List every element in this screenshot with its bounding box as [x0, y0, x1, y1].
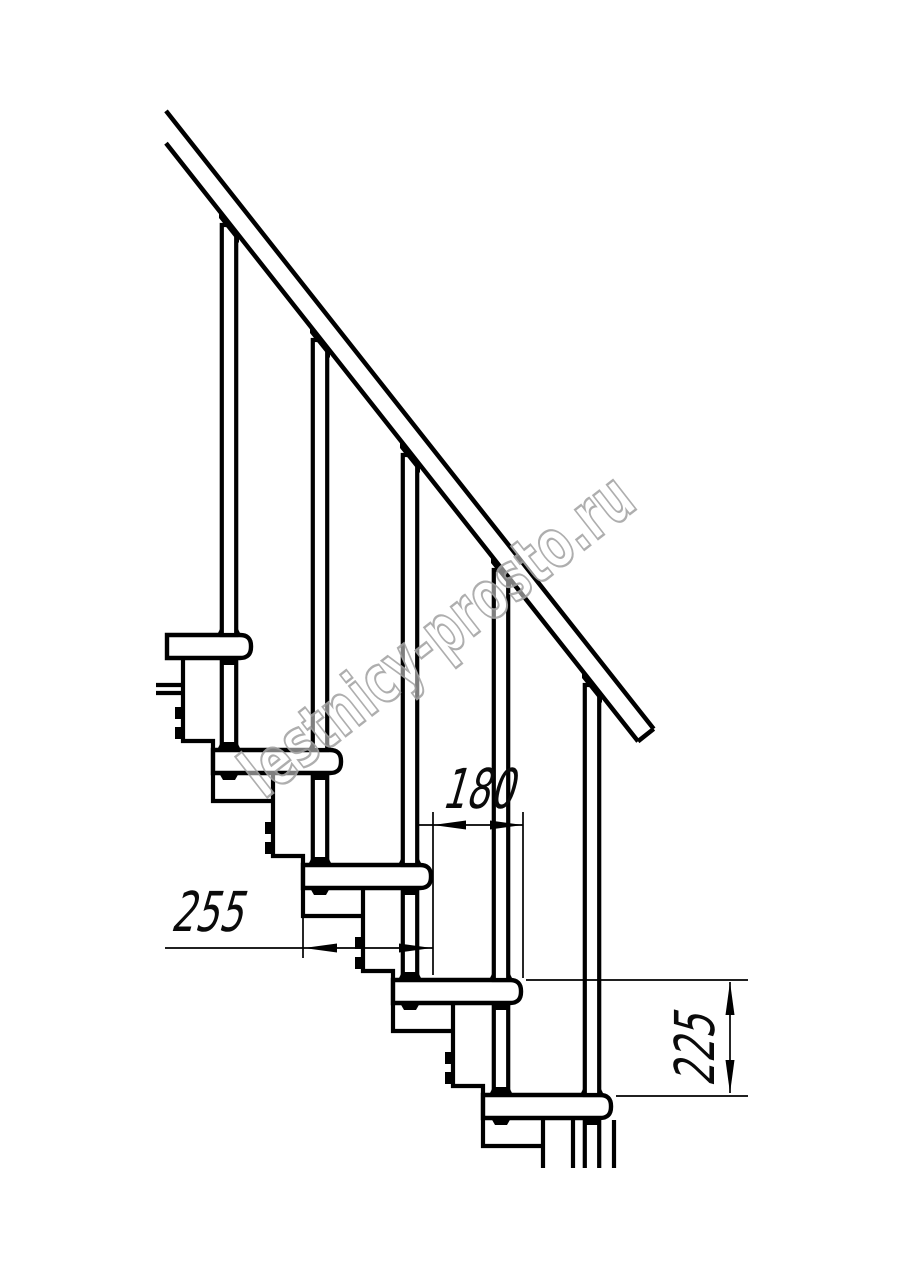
- dimension-step-run-180: 180: [419, 758, 527, 978]
- tread-3: [303, 865, 431, 888]
- staircase-technical-drawing-page: 180 255 225 lestnicy-prosto.ru: [0, 0, 914, 1280]
- dimension-label-step-rise: 225: [664, 1001, 728, 1091]
- dimension-label-step-run: 180: [437, 758, 527, 822]
- staircase-side-view-drawing: 180 255 225 lestnicy-prosto.ru: [0, 0, 914, 1280]
- stringer-module-0-shelf: [156, 685, 183, 693]
- tread-4: [393, 980, 521, 1003]
- dimension-label-tread-depth: 255: [166, 881, 256, 945]
- support-tube: [222, 658, 236, 750]
- support-tube-cropped: [585, 1118, 614, 1168]
- baluster-5: [585, 685, 599, 1095]
- dimension-step-rise-225: 225: [526, 980, 748, 1096]
- support-tube: [403, 888, 417, 980]
- support-tube: [313, 773, 327, 865]
- stringer-module-5: [543, 1118, 573, 1168]
- arrowhead-left-icon: [433, 821, 466, 830]
- arrowhead-left-icon: [304, 944, 337, 953]
- tread-5: [483, 1095, 611, 1118]
- arrowhead-up-icon: [726, 982, 735, 1015]
- tread-1: [167, 635, 251, 658]
- baluster-1: [222, 225, 236, 635]
- support-tube: [494, 1003, 508, 1095]
